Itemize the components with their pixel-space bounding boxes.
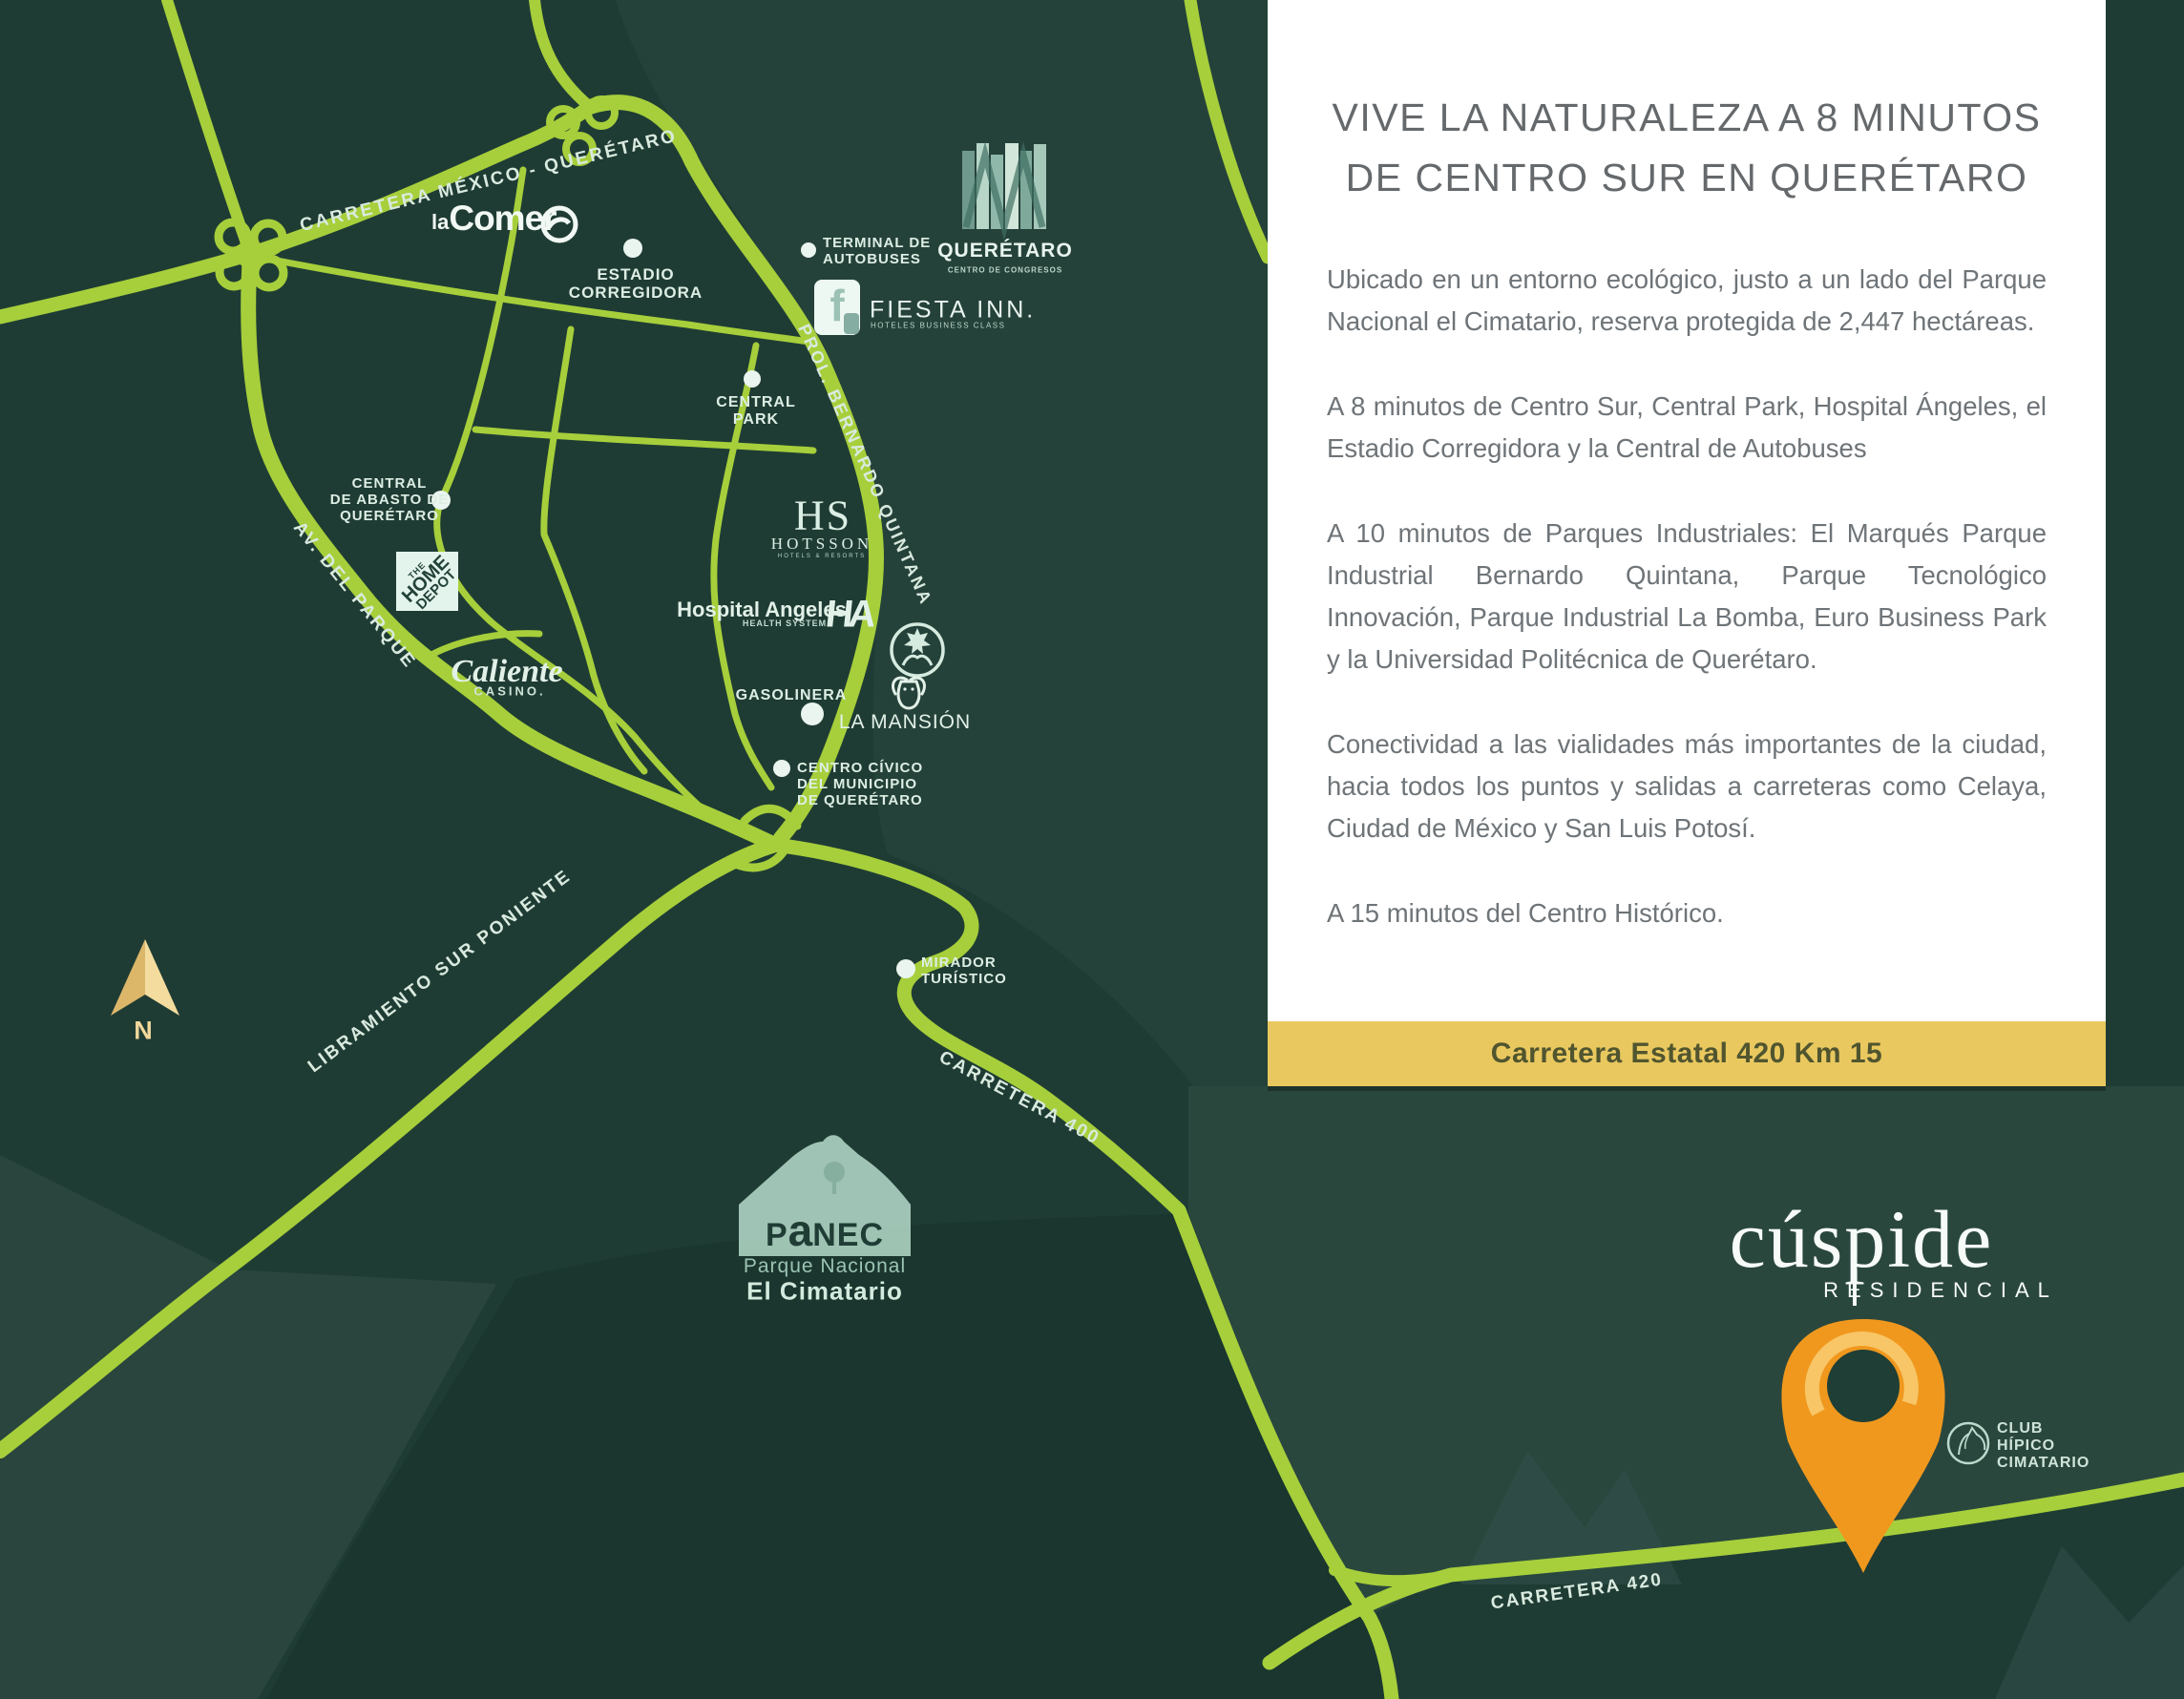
poi-line: CENTRO CÍVICO <box>797 761 923 777</box>
fiesta-inn-sub: HOTELES BUSINESS CLASS <box>871 322 1005 330</box>
brochure-map-page: CARRETERA MÉXICO - QUERÉTARO PROL. BERNA… <box>0 0 2184 1699</box>
poi-line: QUERÉTARO <box>330 508 450 524</box>
poi-line: GASOLINERA <box>736 687 848 704</box>
hotsson-hs: HS <box>794 492 851 540</box>
poi-centro-civico: CENTRO CÍVICO DEL MUNICIPIO DE QUERÉTARO <box>797 761 923 808</box>
poi-line: CENTRAL <box>716 394 795 411</box>
compass-north-label: N <box>134 1017 153 1046</box>
hotsson-sub: HOTELS & RESORTS <box>778 554 866 559</box>
cuspide-logo: cúspide <box>1730 1191 1994 1287</box>
panec-nec: NEC <box>812 1217 884 1254</box>
lacomer-la: la <box>431 212 449 233</box>
poi-line: CENTRAL <box>330 476 450 493</box>
dot-central-park <box>744 370 761 388</box>
poi-line: TURÍSTICO <box>921 972 1007 988</box>
panel-paragraph: A 10 minutos de Parques Industriales: El… <box>1327 513 2047 681</box>
poi-gasolinera: GASOLINERA <box>736 687 848 704</box>
panel-paragraph: A 8 minutos de Centro Sur, Central Park,… <box>1327 386 2047 470</box>
hospital-angeles-monogram: HA <box>824 594 874 637</box>
panel-title: VIVE LA NATURALEZA A 8 MINUTOS DE CENTRO… <box>1327 88 2047 207</box>
panec-logo: PaNEC <box>766 1205 884 1256</box>
poi-mirador-turistico: MIRADOR TURÍSTICO <box>921 955 1007 988</box>
poi-estadio-corregidora: ESTADIO CORREGIDORA <box>569 265 703 302</box>
address-banner: Carretera Estatal 420 Km 15 <box>1268 1021 2106 1086</box>
fiesta-inn-logo: FIESTA INN. <box>870 297 1036 325</box>
club-hipico-line: HÍPICO <box>1997 1437 2055 1455</box>
home-depot-logo: THE HOME DEPOT <box>396 552 458 611</box>
dot-mirador-turistico <box>896 959 915 978</box>
queretaro-congress-sub: CENTRO DE CONGRESOS <box>948 266 1062 275</box>
dot-estadio-corregidora <box>623 239 642 258</box>
club-hipico-line: CLUB <box>1997 1420 2043 1437</box>
hospital-angeles-sub: HEALTH SYSTEM <box>743 619 827 628</box>
la-mansion-logo: LA MANSIÓN <box>839 711 971 734</box>
panel-paragraph: A 15 minutos del Centro Histórico. <box>1327 892 2047 934</box>
panec-el-cimatario: El Cimatario <box>746 1277 903 1307</box>
club-hipico-line: CIMATARIO <box>1997 1455 2089 1472</box>
poi-line: PARK <box>716 411 795 429</box>
title-line-1: VIVE LA NATURALEZA A 8 MINUTOS <box>1332 95 2041 139</box>
panec-p: P <box>766 1217 788 1254</box>
lacomer-comer: Comer <box>449 204 556 233</box>
dot-gasolinera <box>801 703 824 725</box>
poi-line: TERMINAL DE <box>823 236 931 252</box>
poi-line: ESTADIO <box>569 265 703 283</box>
poi-line: AUTOBUSES <box>823 252 931 268</box>
panec-parque-nacional: Parque Nacional <box>744 1255 906 1278</box>
caliente-sub: CASINO. <box>473 684 545 699</box>
fiesta-inn-f: f <box>829 280 844 331</box>
poi-central-de-abasto: CENTRAL DE ABASTO DE QUERÉTARO <box>330 476 450 524</box>
poi-line: DE QUERÉTARO <box>797 792 923 808</box>
poi-central-park: CENTRAL PARK <box>716 394 795 429</box>
poi-line: DEL MUNICIPIO <box>797 777 923 793</box>
panel-paragraph: Conectividad a las vialidades más import… <box>1327 724 2047 849</box>
poi-line: MIRADOR <box>921 955 1007 972</box>
panel-paragraph: Ubicado en un entorno ecológico, justo a… <box>1327 259 2047 343</box>
poi-terminal-autobuses: TERMINAL DE AUTOBUSES <box>823 236 931 268</box>
panec-a: a <box>788 1205 813 1256</box>
poi-line: DE ABASTO DE <box>330 493 450 509</box>
lacomer-logo: laComer <box>431 204 556 233</box>
info-panel: VIVE LA NATURALEZA A 8 MINUTOS DE CENTRO… <box>1268 0 2106 1021</box>
dot-terminal-autobuses <box>801 242 816 258</box>
cuspide-residencial: RESIDENCIAL <box>1823 1278 2058 1303</box>
dot-centro-civico <box>773 760 790 777</box>
queretaro-congress-logo: QUERÉTARO <box>937 240 1073 262</box>
poi-line: CORREGIDORA <box>569 283 703 302</box>
title-line-2: DE CENTRO SUR EN QUERÉTARO <box>1346 156 2028 199</box>
hotsson-logo: HOTSSON <box>771 535 872 554</box>
